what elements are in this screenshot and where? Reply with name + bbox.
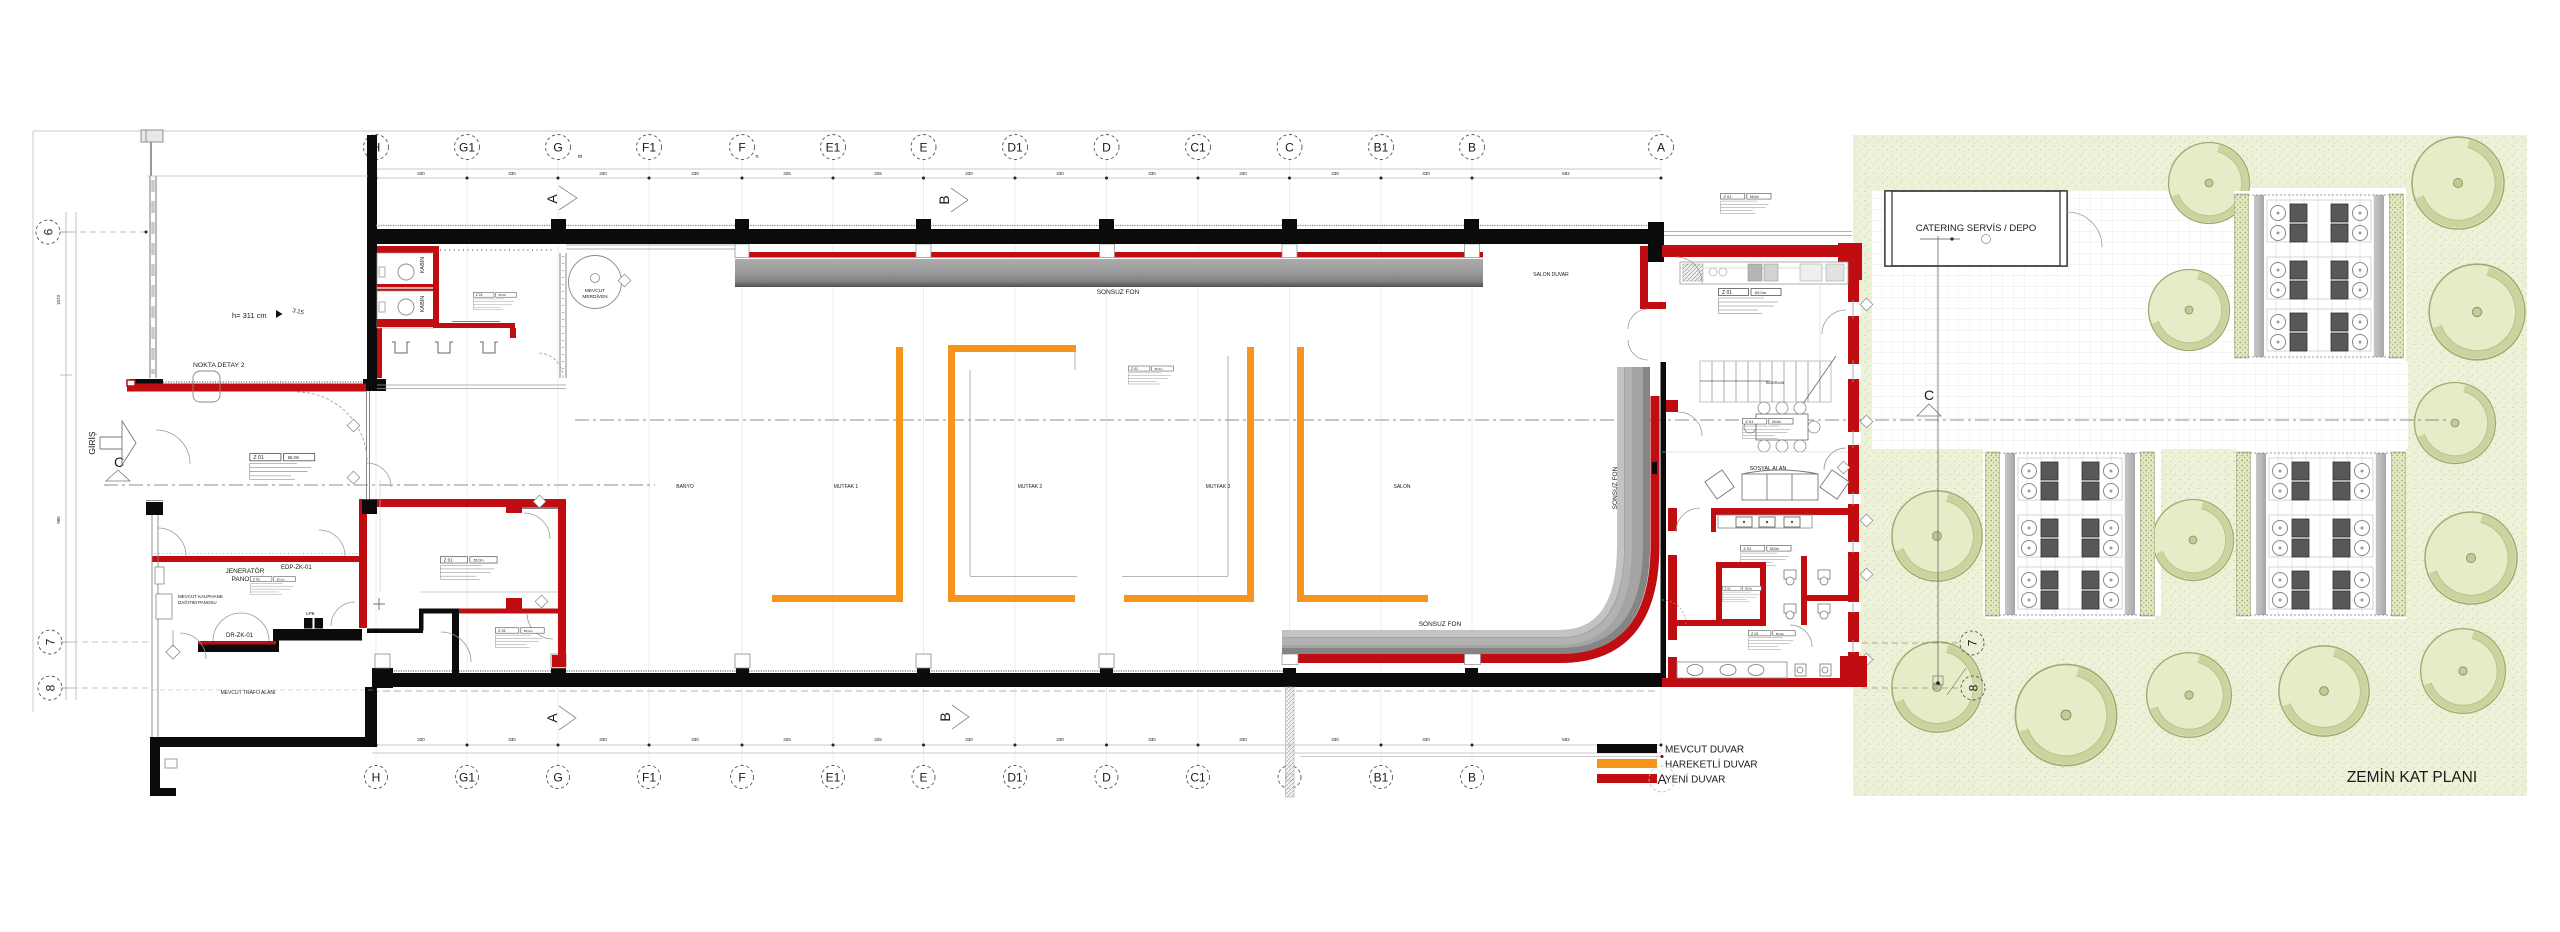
svg-text:8: 8 bbox=[44, 684, 58, 691]
svg-text:G1: G1 bbox=[459, 141, 475, 155]
svg-text:B1: B1 bbox=[1374, 141, 1389, 155]
svg-text:BODRUM: BODRUM bbox=[1766, 380, 1784, 385]
svg-text:SALON: SALON bbox=[1394, 484, 1411, 490]
svg-text:6: 6 bbox=[42, 228, 56, 235]
svg-text:C: C bbox=[1285, 141, 1294, 155]
svg-text:B: B bbox=[1468, 141, 1476, 155]
svg-text:330: 330 bbox=[1422, 737, 1430, 742]
svg-text:F1: F1 bbox=[642, 141, 656, 155]
svg-text:D: D bbox=[1102, 141, 1111, 155]
svg-text:330: 330 bbox=[1239, 737, 1247, 742]
svg-text:985: 985 bbox=[56, 516, 61, 524]
svg-text:E1: E1 bbox=[826, 771, 841, 785]
svg-text:C1: C1 bbox=[1190, 141, 1206, 155]
svg-text:DAĞITIM PANOSU: DAĞITIM PANOSU bbox=[178, 599, 217, 605]
svg-text:D1: D1 bbox=[1007, 771, 1023, 785]
svg-text:ZEMİN KAT PLANI: ZEMİN KAT PLANI bbox=[2347, 768, 2477, 786]
svg-text:G: G bbox=[553, 771, 562, 785]
svg-text:B: B bbox=[1468, 771, 1476, 785]
svg-text:MUTFAK 1: MUTFAK 1 bbox=[834, 484, 859, 490]
svg-text:m: m bbox=[578, 154, 583, 160]
svg-text:325: 325 bbox=[783, 737, 791, 742]
svg-text:330: 330 bbox=[599, 737, 607, 742]
svg-text:HAREKETLİ DUVAR: HAREKETLİ DUVAR bbox=[1665, 758, 1758, 771]
svg-text:B: B bbox=[937, 712, 953, 721]
svg-text:F: F bbox=[738, 771, 745, 785]
svg-text:BANYO: BANYO bbox=[676, 484, 694, 490]
svg-text:LPB: LPB bbox=[306, 611, 315, 616]
svg-text:MERDİVEN: MERDİVEN bbox=[582, 293, 608, 300]
svg-text:330: 330 bbox=[417, 171, 425, 176]
svg-text:JENERATÖR: JENERATÖR bbox=[226, 567, 265, 575]
svg-text:330: 330 bbox=[691, 171, 699, 176]
svg-text:CATERING SERVİS / DEPO: CATERING SERVİS / DEPO bbox=[1916, 223, 2037, 234]
svg-text:682: 682 bbox=[1562, 737, 1570, 742]
svg-text:DR-ZK-01: DR-ZK-01 bbox=[226, 633, 254, 639]
svg-text:G1: G1 bbox=[459, 771, 475, 785]
svg-text:GİRİŞ: GİRİŞ bbox=[87, 431, 97, 454]
svg-text:F1: F1 bbox=[642, 771, 656, 785]
svg-text:SONSUZ FON: SONSUZ FON bbox=[1612, 466, 1619, 509]
svg-text:682: 682 bbox=[1562, 171, 1570, 176]
svg-text:A: A bbox=[544, 713, 560, 723]
svg-text:MEVCUT DUVAR: MEVCUT DUVAR bbox=[1665, 745, 1744, 756]
svg-text:8: 8 bbox=[1967, 684, 1981, 691]
svg-text:330: 330 bbox=[508, 171, 516, 176]
svg-text:D: D bbox=[1102, 771, 1111, 785]
svg-text:330: 330 bbox=[508, 737, 516, 742]
svg-text:330: 330 bbox=[1148, 737, 1156, 742]
svg-text:330: 330 bbox=[691, 737, 699, 742]
svg-text:C: C bbox=[114, 454, 124, 470]
svg-text:KABİN: KABİN bbox=[419, 257, 426, 274]
svg-text:330: 330 bbox=[965, 171, 973, 176]
svg-text:330: 330 bbox=[965, 737, 973, 742]
svg-text:330: 330 bbox=[1056, 737, 1064, 742]
svg-text:MEVCUT KAUPHANE: MEVCUT KAUPHANE bbox=[178, 594, 223, 599]
svg-text:B1: B1 bbox=[1374, 771, 1389, 785]
svg-text:C1: C1 bbox=[1190, 771, 1206, 785]
svg-text:330: 330 bbox=[1422, 171, 1430, 176]
svg-text:MEVCUT TRAFO ALANI: MEVCUT TRAFO ALANI bbox=[221, 690, 276, 696]
svg-text:325: 325 bbox=[783, 171, 791, 176]
svg-text:325: 325 bbox=[874, 171, 882, 176]
svg-text:h= 311 cm: h= 311 cm bbox=[232, 311, 267, 320]
svg-text:1073: 1073 bbox=[56, 294, 61, 305]
svg-text:330: 330 bbox=[1148, 171, 1156, 176]
svg-text:A: A bbox=[1657, 141, 1665, 155]
svg-text:H: H bbox=[372, 771, 381, 785]
svg-text:n: n bbox=[755, 154, 758, 160]
svg-text:E: E bbox=[919, 141, 927, 155]
svg-text:330: 330 bbox=[1331, 737, 1339, 742]
svg-text:E1: E1 bbox=[826, 141, 841, 155]
svg-text:SALON DUVAR: SALON DUVAR bbox=[1533, 272, 1569, 278]
svg-text:330: 330 bbox=[1056, 171, 1064, 176]
svg-text:D1: D1 bbox=[1007, 141, 1023, 155]
svg-text:A: A bbox=[544, 194, 560, 204]
svg-text:MEVCUT: MEVCUT bbox=[585, 288, 605, 294]
svg-text:A: A bbox=[1657, 771, 1667, 787]
svg-text:330: 330 bbox=[1331, 171, 1339, 176]
svg-text:325: 325 bbox=[874, 737, 882, 742]
svg-text:MUTFAK 3: MUTFAK 3 bbox=[1206, 484, 1231, 490]
svg-text:330: 330 bbox=[599, 171, 607, 176]
svg-text:SOSYAL ALAN: SOSYAL ALAN bbox=[1750, 466, 1787, 472]
svg-text:SONSUZ FON: SONSUZ FON bbox=[1097, 289, 1140, 296]
svg-text:330: 330 bbox=[417, 737, 425, 742]
svg-text:F: F bbox=[738, 141, 745, 155]
svg-text:330: 330 bbox=[1239, 171, 1247, 176]
svg-text:G: G bbox=[553, 141, 562, 155]
svg-text:E: E bbox=[919, 771, 927, 785]
svg-text:B: B bbox=[936, 195, 952, 204]
svg-text:NOKTA DETAY 2: NOKTA DETAY 2 bbox=[193, 362, 245, 369]
svg-text:MUTFAK 2: MUTFAK 2 bbox=[1018, 484, 1043, 490]
svg-text:SONSUZ FON: SONSUZ FON bbox=[1419, 621, 1462, 628]
svg-text:KABİN: KABİN bbox=[419, 296, 426, 313]
svg-text:EDP-ZK-01: EDP-ZK-01 bbox=[281, 565, 312, 571]
svg-text:7: 7 bbox=[44, 638, 58, 645]
svg-text:C: C bbox=[1924, 387, 1934, 403]
svg-text:7: 7 bbox=[1966, 639, 1980, 646]
